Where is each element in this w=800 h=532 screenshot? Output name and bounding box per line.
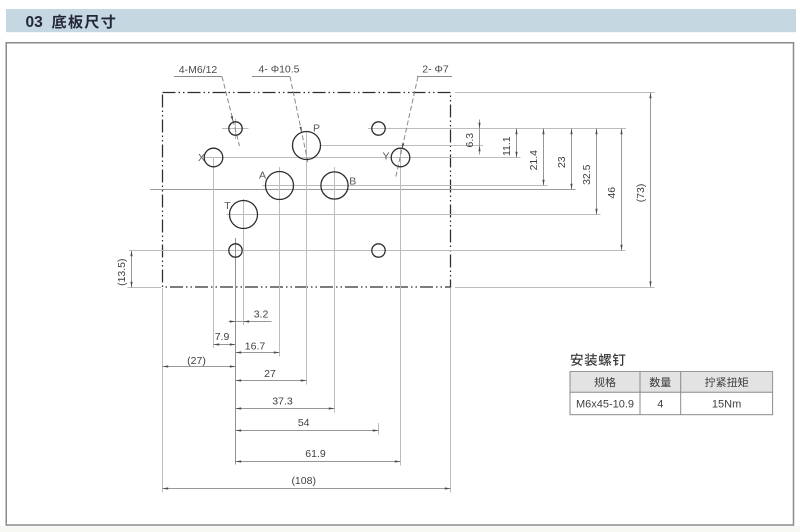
svg-text:6.3: 6.3 — [464, 133, 476, 148]
svg-text:4- Φ10.5: 4- Φ10.5 — [258, 64, 299, 76]
svg-text:16.7: 16.7 — [245, 340, 266, 352]
svg-text:21.4: 21.4 — [528, 150, 540, 171]
svg-text:(73): (73) — [635, 184, 647, 203]
svg-text:54: 54 — [298, 417, 310, 429]
svg-text:Y: Y — [382, 151, 389, 163]
svg-text:27: 27 — [264, 368, 276, 380]
svg-text:P: P — [313, 123, 320, 135]
svg-text:61.9: 61.9 — [305, 448, 326, 460]
svg-text:23: 23 — [556, 156, 568, 168]
svg-text:46: 46 — [606, 187, 618, 199]
svg-text:M6x45-10.9: M6x45-10.9 — [576, 399, 634, 411]
svg-text:A: A — [259, 170, 266, 182]
svg-text:(13.5): (13.5) — [116, 258, 128, 285]
svg-text:03: 03 — [26, 14, 44, 31]
svg-text:3.2: 3.2 — [254, 309, 269, 321]
svg-text:15Nm: 15Nm — [712, 399, 741, 411]
svg-text:2- Φ7: 2- Φ7 — [422, 64, 449, 76]
svg-text:7.9: 7.9 — [215, 331, 230, 343]
svg-text:4: 4 — [657, 399, 663, 411]
svg-text:(27): (27) — [187, 355, 206, 367]
svg-text:T: T — [224, 200, 231, 212]
svg-text:37.3: 37.3 — [272, 395, 293, 407]
svg-text:B: B — [349, 176, 356, 188]
svg-text:11.1: 11.1 — [501, 136, 513, 156]
svg-text:X: X — [198, 152, 205, 164]
svg-text:4-M6/12: 4-M6/12 — [179, 64, 218, 76]
svg-text:(108): (108) — [291, 475, 316, 487]
svg-text:32.5: 32.5 — [581, 164, 593, 185]
